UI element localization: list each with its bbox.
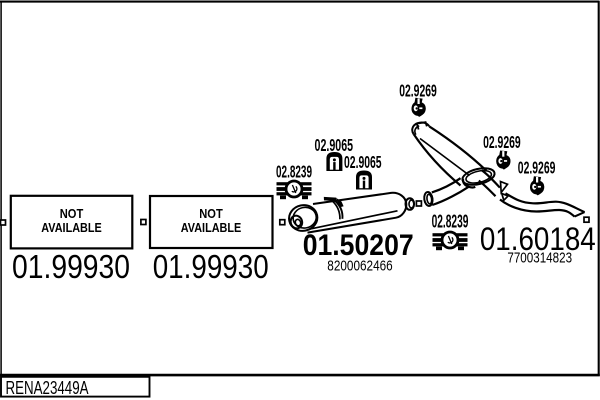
svg-text:NOT: NOT [60, 207, 84, 221]
svg-text:01.99930: 01.99930 [153, 248, 269, 285]
svg-text:01.99930: 01.99930 [12, 248, 130, 285]
svg-text:02.9269: 02.9269 [399, 80, 437, 100]
svg-text:8200062466: 8200062466 [327, 258, 392, 275]
svg-text:RENA23449A: RENA23449A [6, 378, 89, 398]
svg-text:02.9065: 02.9065 [344, 152, 382, 172]
svg-text:AVAILABLE: AVAILABLE [181, 221, 242, 235]
svg-text:NOT: NOT [199, 207, 223, 221]
svg-text:02.8239: 02.8239 [276, 161, 312, 181]
svg-text:02.9269: 02.9269 [518, 157, 556, 177]
svg-text:7700314823: 7700314823 [507, 250, 572, 267]
svg-text:02.8239: 02.8239 [432, 212, 469, 232]
svg-text:02.9269: 02.9269 [483, 132, 521, 152]
svg-text:AVAILABLE: AVAILABLE [41, 221, 102, 235]
